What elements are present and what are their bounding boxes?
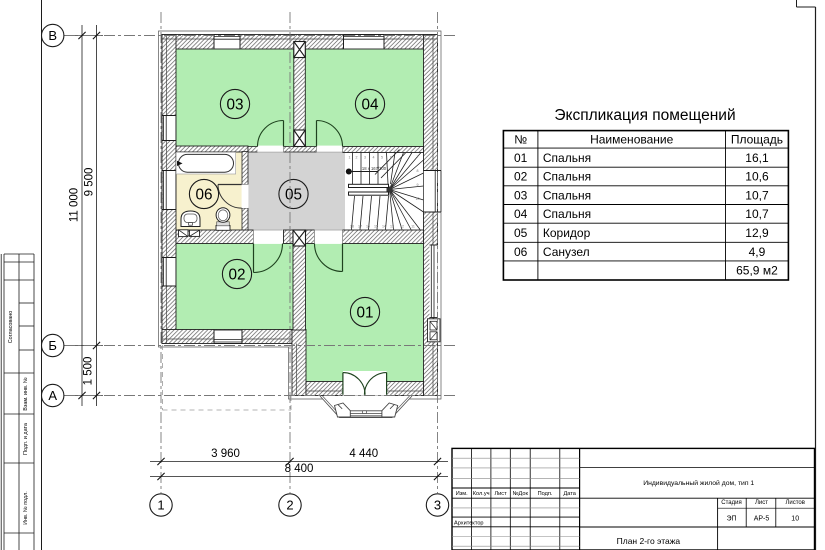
svg-text:2: 2 [356, 156, 358, 160]
svg-text:3: 3 [364, 156, 366, 160]
svg-text:18: 18 [350, 225, 354, 229]
svg-text:Подп.: Подп. [538, 491, 553, 497]
svg-text:02: 02 [514, 170, 528, 184]
svg-text:4 440: 4 440 [349, 448, 378, 460]
svg-text:ЭП: ЭП [726, 515, 736, 522]
svg-text:1: 1 [157, 498, 164, 513]
svg-text:2: 2 [286, 498, 293, 513]
svg-text:Спальня: Спальня [543, 170, 591, 184]
svg-text:10,7: 10,7 [745, 207, 769, 221]
svg-text:4,9: 4,9 [749, 245, 766, 259]
svg-text:Архитектор: Архитектор [454, 520, 484, 526]
svg-text:18 x 167/300: 18 x 167/300 [362, 166, 387, 171]
svg-text:Изм.: Изм. [456, 491, 468, 497]
svg-text:Спальня: Спальня [543, 188, 591, 202]
svg-text:Стадия: Стадия [721, 500, 741, 506]
svg-text:02: 02 [228, 266, 245, 283]
svg-text:Наименование: Наименование [590, 132, 674, 146]
svg-text:01: 01 [514, 151, 528, 165]
svg-text:05: 05 [514, 226, 528, 240]
svg-text:Б: Б [48, 338, 57, 353]
svg-text:12: 12 [400, 225, 404, 229]
svg-text:16: 16 [366, 225, 370, 229]
svg-text:Согласовано: Согласовано [8, 311, 14, 343]
svg-text:№: № [514, 132, 527, 146]
svg-text:11 000: 11 000 [68, 188, 80, 222]
svg-text:12,9: 12,9 [745, 226, 769, 240]
svg-text:17: 17 [358, 225, 362, 229]
svg-text:8 400: 8 400 [285, 463, 314, 475]
svg-text:9: 9 [417, 183, 419, 187]
svg-text:05: 05 [285, 186, 302, 203]
svg-text:10: 10 [416, 197, 420, 201]
svg-text:Подп. и дата: Подп. и дата [23, 423, 29, 455]
svg-text:7: 7 [417, 155, 419, 159]
svg-text:10,6: 10,6 [745, 170, 769, 184]
svg-text:Коридор: Коридор [543, 226, 591, 240]
svg-text:3: 3 [434, 498, 441, 513]
svg-text:Инв. № подл.: Инв. № подл. [23, 491, 29, 525]
svg-text:06: 06 [195, 186, 212, 203]
svg-text:Листов: Листов [785, 500, 805, 506]
svg-text:В: В [48, 28, 57, 43]
svg-text:10,7: 10,7 [745, 188, 769, 202]
svg-text:9 500: 9 500 [83, 168, 95, 197]
svg-text:А: А [48, 388, 57, 403]
svg-text:04: 04 [361, 96, 379, 113]
svg-text:3 960: 3 960 [211, 448, 240, 460]
svg-text:8: 8 [417, 169, 419, 173]
svg-text:14: 14 [382, 225, 386, 229]
svg-text:Лист: Лист [495, 491, 508, 497]
svg-text:№Док: №Док [512, 491, 528, 497]
svg-text:АР-5: АР-5 [754, 515, 770, 522]
svg-text:06: 06 [514, 245, 528, 259]
svg-text:Кол.уч: Кол.уч [473, 491, 490, 497]
svg-text:5: 5 [381, 156, 383, 160]
svg-text:Лист: Лист [755, 500, 768, 506]
svg-text:Взам. инв. №: Взам. инв. № [23, 377, 29, 411]
svg-text:1: 1 [349, 156, 351, 160]
svg-text:01: 01 [356, 304, 373, 321]
svg-text:04: 04 [514, 207, 528, 221]
svg-text:4: 4 [373, 156, 375, 160]
svg-text:03: 03 [514, 188, 528, 202]
svg-text:Площадь: Площадь [731, 132, 783, 146]
svg-text:65,9 м2: 65,9 м2 [736, 264, 778, 278]
svg-text:16,1: 16,1 [745, 151, 769, 165]
svg-text:Дата: Дата [564, 491, 577, 497]
svg-text:План 2-го этажа: План 2-го этажа [617, 536, 681, 546]
svg-text:03: 03 [226, 96, 243, 113]
svg-text:Спальня: Спальня [543, 151, 591, 165]
svg-text:1 500: 1 500 [83, 357, 95, 386]
svg-text:13: 13 [390, 225, 394, 229]
svg-text:15: 15 [374, 225, 378, 229]
svg-text:Санузел: Санузел [543, 245, 590, 259]
svg-text:Экспликация помещений: Экспликация помещений [554, 107, 735, 124]
svg-text:6: 6 [390, 156, 392, 160]
svg-text:10: 10 [791, 515, 799, 522]
svg-text:11: 11 [411, 225, 415, 229]
svg-text:Индивидуальный жилой дом, тип: Индивидуальный жилой дом, тип 1 [643, 479, 754, 487]
svg-text:Спальня: Спальня [543, 207, 591, 221]
